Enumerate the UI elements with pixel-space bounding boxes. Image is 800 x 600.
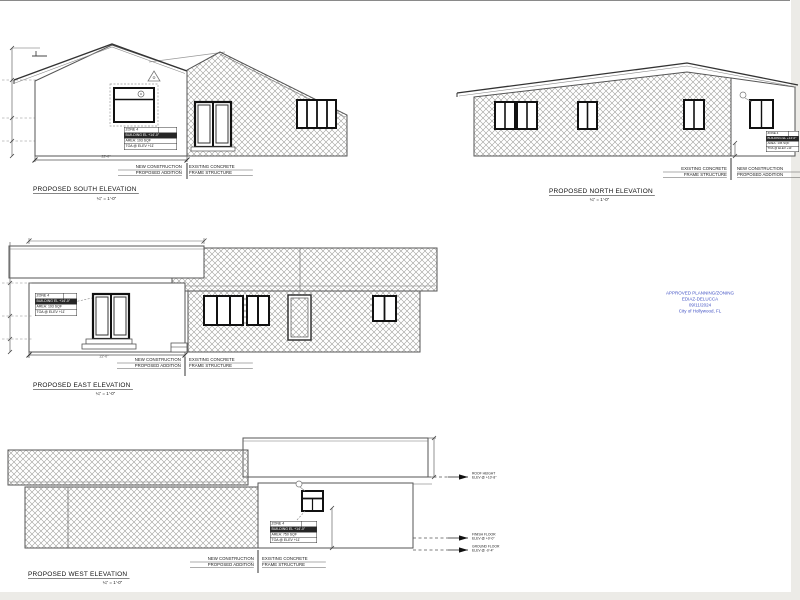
east-entry-door <box>288 295 311 340</box>
south-label-new-construction: NEW CONSTRUCTION PROPOSED ADDITION <box>118 164 182 176</box>
west-level-markers <box>413 474 468 552</box>
zone-table-north: ZONE 4 BUILDING EL +14'-0" AREA: 136 SQF… <box>766 131 799 152</box>
west-existing-wall <box>25 487 258 548</box>
zone-table-row: TOA @ ELEV +11' <box>36 310 77 316</box>
scan-edge-bottom <box>0 592 800 600</box>
north-label-new-construction: NEW CONSTRUCTION PROPOSED ADDITION <box>737 166 800 178</box>
south-proposed-window <box>110 84 158 126</box>
east-label-new-construction: NEW CONSTRUCTION PROPOSED ADDITION <box>117 357 181 369</box>
zone-table-east: ZONE 4 BUILDING EL +14'-0" AREA: 193 SQF… <box>35 293 77 316</box>
east-label-existing: EXISTING CONCRETE FRAME STRUCTURE <box>189 357 253 369</box>
zone-table-row: TOA @ ELEV +11' <box>271 538 317 544</box>
west-label-existing: EXISTING CONCRETE FRAME STRUCTURE <box>262 556 326 568</box>
south-label-existing: EXISTING CONCRETE FRAME STRUCTURE <box>189 164 253 176</box>
east-elevation-title: PROPOSED EAST ELEVATION <box>33 381 133 390</box>
south-elevation-title: PROPOSED SOUTH ELEVATION <box>33 185 139 194</box>
zone-table-west: ZONE 4 BUILDING EL +14'-0" AREA: 750 SQF… <box>270 521 317 543</box>
stamp-line: City of Hollywood, FL <box>650 308 750 314</box>
east-elevation-scale: ¼" = 1'-0" <box>58 391 153 396</box>
north-label-existing: EXISTING CONCRETE FRAME STRUCTURE <box>663 166 727 178</box>
zone-table-row: BUILDING EL +14'-0" <box>767 136 799 141</box>
south-sliding-door <box>191 102 235 151</box>
roof-height-marker: ROOF HEIGHT ELEV @ +10'-8" <box>472 472 496 480</box>
zone-table-row: TOA @ ELEV +11' <box>767 146 799 151</box>
drawing-sheet: ZONE 4 BUILDING EL +14'-0" AREA: 193 SQF… <box>0 0 800 600</box>
west-new-parapet <box>243 436 436 479</box>
north-elevation-title: PROPOSED NORTH ELEVATION <box>549 187 655 196</box>
south-elevation-drawing <box>2 40 352 180</box>
south-existing-window <box>297 100 336 128</box>
west-existing-roof <box>8 450 248 485</box>
sheet-border-line-inner <box>0 0 790 1</box>
south-elevation-scale: ¼" = 1'-0" <box>59 196 154 201</box>
finish-floor-marker: FINISH FLOOR ELEV @ +0'-0" <box>472 533 496 541</box>
north-elevation-scale: ¼" = 1'-0" <box>552 197 647 202</box>
approval-stamp: APPROVED PLANNING/ZONING EDIAZ-DELUCCA 0… <box>650 290 750 314</box>
east-existing-roof <box>172 248 437 291</box>
west-elevation-title: PROPOSED WEST ELEVATION <box>28 570 129 579</box>
ground-floor-marker: GROUND FLOOR ELEV @ -0'-4" <box>472 545 499 553</box>
zone-table-south: ZONE 4 BUILDING EL +14'-0" AREA: 193 SQF… <box>124 127 177 150</box>
east-new-parapet <box>9 246 204 278</box>
zone-table-row: TOA @ ELEV +11' <box>125 144 177 150</box>
west-label-new-construction: NEW CONSTRUCTION PROPOSED ADDITION <box>190 556 254 568</box>
south-width-dimension: 22'-0" <box>86 155 126 159</box>
west-elevation-scale: ¼" = 1'-0" <box>65 580 160 585</box>
